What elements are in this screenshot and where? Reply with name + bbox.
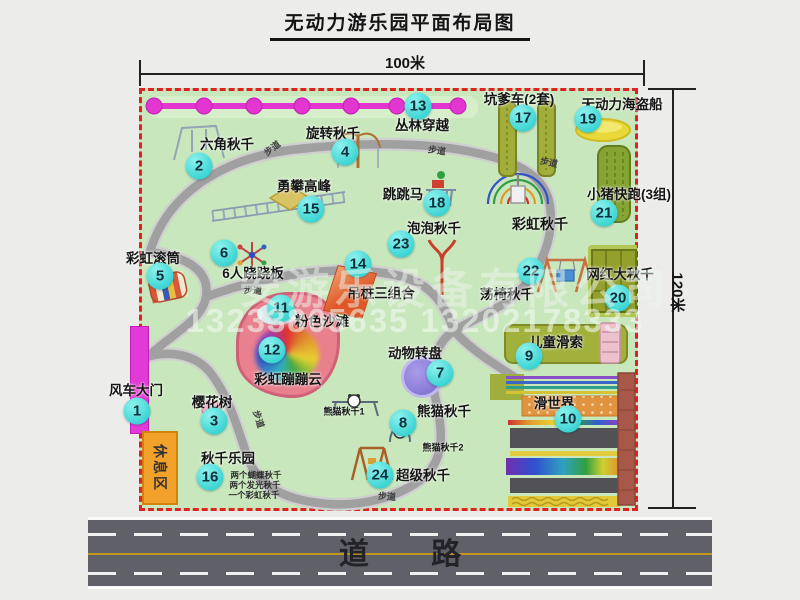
attraction-badge-6: 6 xyxy=(211,240,238,267)
attraction-label-7: 动物转盘 xyxy=(388,342,442,362)
extra-label-0: 彩虹秋千 xyxy=(512,214,568,234)
height-dimension-tick-top xyxy=(648,88,696,90)
attraction-label-15: 勇攀高峰 xyxy=(277,175,331,195)
width-dimension-label: 100米 xyxy=(385,52,425,73)
swing-park-note-2: 一个彩虹秋千 xyxy=(228,489,279,501)
attraction-badge-10: 10 xyxy=(555,406,582,433)
attraction-label-20: 网红大秋千 xyxy=(586,263,654,283)
extra-label-2: 熊猫秋千2 xyxy=(422,441,463,454)
attraction-label-8: 熊猫秋千 xyxy=(417,400,471,420)
rest-area-label: 休息区 xyxy=(150,444,170,492)
attraction-badge-18: 18 xyxy=(424,190,451,217)
height-dimension-tick-bottom xyxy=(648,507,696,509)
attraction-label-12: 彩虹蹦蹦云 xyxy=(254,368,322,388)
attraction-badge-16: 16 xyxy=(197,464,224,491)
attraction-label-14: 吊桩三组合 xyxy=(347,282,415,302)
attraction-badge-2: 2 xyxy=(186,153,213,180)
attraction-badge-24: 24 xyxy=(367,462,394,489)
attraction-badge-21: 21 xyxy=(591,200,618,227)
road: 道 路 xyxy=(88,517,712,589)
extra-label-1: 熊猫秋千1 xyxy=(323,405,364,418)
park-plan-poster: 无动力游乐园平面布局图 100米 120米 xyxy=(0,0,800,600)
page-title-wrap: 无动力游乐园平面布局图 xyxy=(0,8,800,41)
attraction-label-23: 泡泡秋千 xyxy=(407,217,461,237)
width-dimension-tick-right xyxy=(643,60,645,86)
attraction-badge-23: 23 xyxy=(388,231,415,258)
page-title: 无动力游乐园平面布局图 xyxy=(270,8,529,41)
walkway-label-5: 步道 xyxy=(378,489,397,503)
attraction-label-2: 六角秋千 xyxy=(200,133,254,153)
attraction-badge-7: 7 xyxy=(427,360,454,387)
rest-area: 休息区 xyxy=(142,431,178,505)
road-label: 道 路 xyxy=(88,529,712,573)
attraction-badge-20: 20 xyxy=(605,285,632,312)
width-dimension-tick-left xyxy=(139,60,141,86)
attraction-badge-4: 4 xyxy=(332,139,359,166)
attraction-badge-14: 14 xyxy=(345,251,372,278)
attraction-label-18: 跳跳马 xyxy=(383,183,424,203)
attraction-badge-8: 8 xyxy=(390,410,417,437)
attraction-label-1: 风车大门 xyxy=(109,379,163,399)
attraction-badge-15: 15 xyxy=(298,196,325,223)
attraction-badge-17: 17 xyxy=(510,105,537,132)
width-dimension-line xyxy=(140,73,644,75)
walkway-label-3: 步道 xyxy=(244,283,263,297)
attraction-label-22: 荡椅秋千 xyxy=(480,283,534,303)
attraction-label-4: 旋转秋千 xyxy=(306,122,360,142)
attraction-badge-12: 12 xyxy=(259,337,286,364)
attraction-badge-22: 22 xyxy=(518,258,545,285)
attraction-badge-19: 19 xyxy=(575,106,602,133)
attraction-label-6: 6人跷跷板 xyxy=(222,262,284,282)
attraction-label-24: 超级秋千 xyxy=(396,464,450,484)
attraction-badge-9: 9 xyxy=(516,343,543,370)
attraction-badge-3: 3 xyxy=(201,408,228,435)
walkway-label-1: 步道 xyxy=(427,142,447,157)
attraction-label-11: 粉色沙滩 xyxy=(295,310,349,330)
attraction-badge-5: 5 xyxy=(147,263,174,290)
height-dimension-label: 120米 xyxy=(668,272,689,312)
attraction-badge-13: 13 xyxy=(405,93,432,120)
attraction-badge-11: 11 xyxy=(268,295,295,322)
attraction-badge-1: 1 xyxy=(124,398,151,425)
